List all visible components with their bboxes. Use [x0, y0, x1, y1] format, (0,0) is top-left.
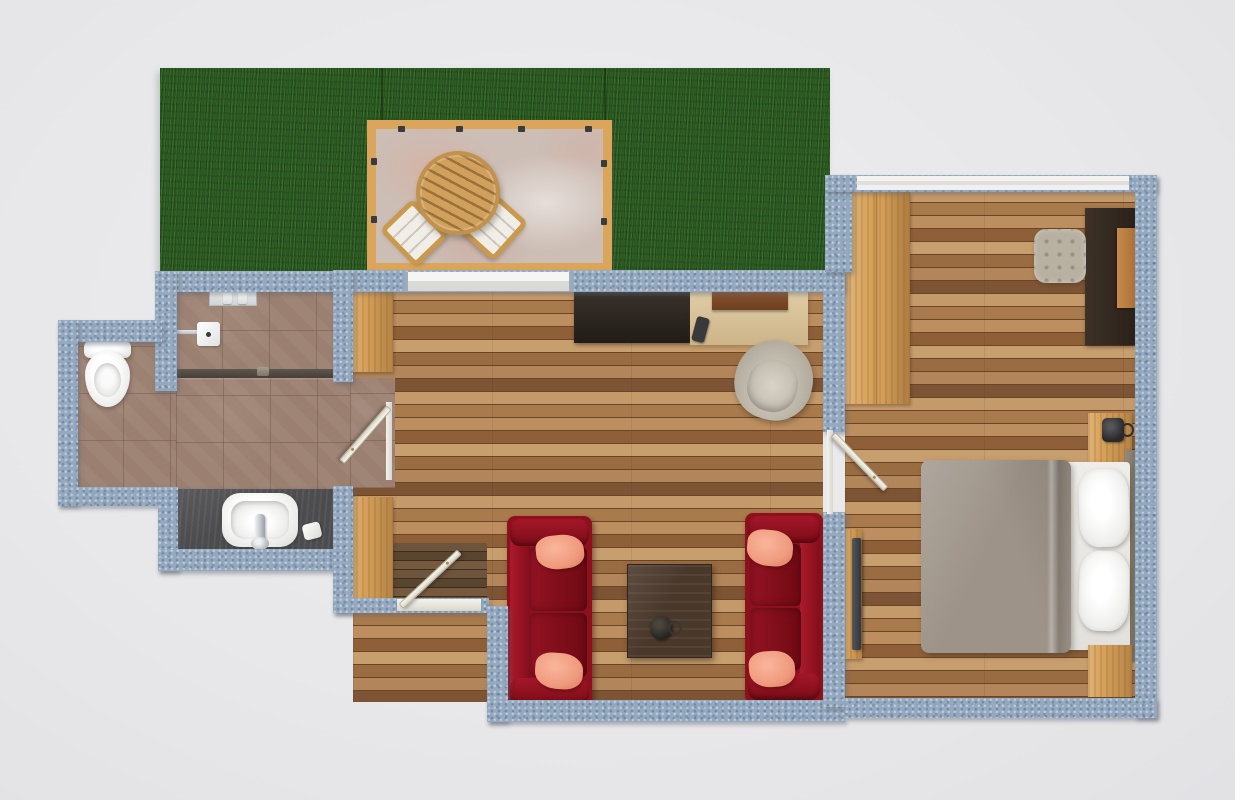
terrace-clamp: [585, 126, 592, 132]
terrace-clamp: [456, 126, 463, 132]
wall-tv: [852, 538, 861, 650]
bed-pillow: [1078, 468, 1131, 548]
wall-bedroom-bottom: [845, 698, 1157, 718]
terrace-clamp: [601, 218, 607, 225]
wall-toilet-left: [58, 320, 78, 505]
terrace-clamp: [398, 126, 405, 132]
bed-blanket: [921, 460, 1071, 653]
wall-toilet-bottom: [58, 487, 162, 506]
shampoo-bottle: [223, 293, 232, 304]
outdoor-table: [416, 151, 500, 235]
bedroom-desk-chair: [1117, 228, 1137, 308]
shampoo-bottle: [238, 293, 247, 304]
wall-shared-lower: [823, 512, 845, 707]
shower-drain-handle: [257, 367, 269, 376]
shower-arm: [177, 330, 198, 334]
throw-pillow: [748, 649, 796, 688]
bedroom-window: [857, 176, 1129, 190]
quilted-stool: [1034, 229, 1086, 283]
door-knob: [872, 475, 876, 479]
wall-shared-upper: [823, 270, 845, 432]
bathroom-floor: [176, 376, 354, 490]
wall-living-left-upper: [333, 270, 353, 382]
door-knob: [445, 561, 449, 565]
bed-pillow: [1078, 550, 1131, 632]
wall-bathroom-top: [158, 271, 348, 292]
coffee-mug-handle: [668, 621, 682, 635]
wall-bedroom-right: [1135, 175, 1157, 718]
hall-wardrobe-bottom: [350, 497, 393, 601]
coffee-table: [627, 564, 712, 658]
bedroom-wardrobe: [843, 192, 910, 404]
nightstand-bottom: [1088, 645, 1132, 697]
sofa-backrest: [510, 521, 530, 703]
wall-living-left-lower: [333, 486, 353, 613]
sofa-backrest: [800, 518, 820, 698]
wall-bathroom-bottom: [158, 549, 348, 571]
terrace-clamp: [371, 216, 377, 223]
terrace-clamp: [371, 158, 377, 165]
wall-living-bottom: [487, 700, 845, 722]
terrace-clamp: [601, 160, 607, 167]
floor-plan-scene: [0, 0, 1235, 800]
bedside-mug-handle: [1121, 423, 1134, 437]
shower-shelf: [209, 290, 257, 306]
sideboard: [574, 291, 690, 343]
desk-board: [712, 291, 788, 310]
terrace-clamp: [518, 126, 525, 132]
hall-wardrobe-top: [350, 290, 393, 372]
terrace-sliding-door: [405, 272, 572, 291]
shower-head: [197, 322, 220, 346]
bedroom-door-frame: [827, 430, 833, 514]
door-knob: [350, 447, 354, 451]
